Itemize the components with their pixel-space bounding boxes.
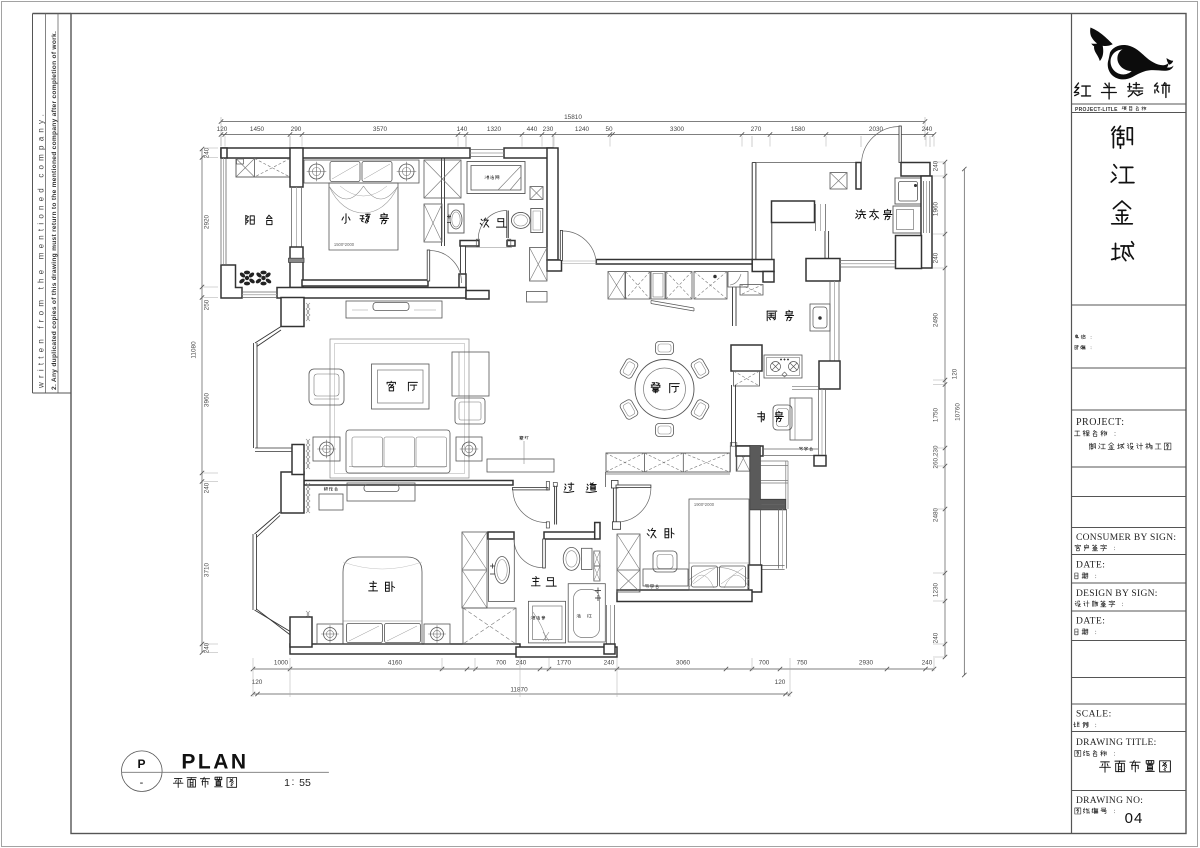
svg-text:1000: 1000: [274, 660, 289, 667]
svg-text:240: 240: [922, 126, 933, 133]
svg-text:DRAWING NO:: DRAWING NO:: [1076, 796, 1143, 806]
svg-text:15810: 15810: [564, 114, 582, 121]
svg-text:11870: 11870: [510, 687, 528, 694]
svg-text:440: 440: [527, 126, 538, 133]
svg-text:55: 55: [299, 777, 311, 789]
svg-text:750: 750: [797, 660, 808, 667]
svg-text:700: 700: [759, 660, 770, 667]
svg-text:CONSUMER BY SIGN:: CONSUMER BY SIGN:: [1076, 533, 1176, 543]
svg-text:DRAWING TITLE:: DRAWING TITLE:: [1076, 738, 1157, 748]
svg-text:240: 240: [933, 632, 940, 643]
svg-text:50: 50: [605, 126, 613, 133]
svg-text:240: 240: [516, 660, 527, 667]
svg-text:240: 240: [204, 482, 211, 493]
svg-text:1450: 1450: [250, 126, 265, 133]
svg-text:DATE:: DATE:: [1076, 617, 1105, 627]
svg-text:11080: 11080: [191, 341, 198, 359]
svg-text:DESIGN BY SIGN:: DESIGN BY SIGN:: [1076, 589, 1158, 599]
svg-text:3300: 3300: [670, 126, 685, 133]
svg-text:1770: 1770: [557, 660, 572, 667]
svg-text:250: 250: [204, 299, 211, 310]
svg-text:1320: 1320: [487, 126, 502, 133]
svg-text:120: 120: [775, 679, 786, 686]
svg-text:290: 290: [291, 126, 302, 133]
svg-text:PLAN: PLAN: [181, 751, 248, 774]
svg-text:04: 04: [1125, 810, 1144, 827]
svg-text:1960: 1960: [933, 201, 940, 216]
svg-text:2930: 2930: [859, 660, 874, 667]
svg-text:3570: 3570: [373, 126, 388, 133]
svg-text:240: 240: [922, 660, 933, 667]
svg-text:2030: 2030: [869, 126, 884, 133]
svg-text:700: 700: [496, 660, 507, 667]
svg-text:140: 140: [457, 126, 468, 133]
svg-text:SCALE:: SCALE:: [1076, 710, 1112, 720]
svg-text:240: 240: [604, 660, 615, 667]
svg-text:260,230: 260,230: [933, 445, 940, 469]
svg-text:230: 230: [543, 126, 554, 133]
svg-text:2490: 2490: [933, 312, 940, 327]
svg-text:4160: 4160: [388, 660, 403, 667]
svg-text:1500*2000: 1500*2000: [334, 242, 355, 247]
svg-text:3710: 3710: [204, 562, 211, 577]
svg-text:1: 1: [284, 777, 290, 789]
svg-text:3960: 3960: [204, 392, 211, 407]
svg-text:written from the mentioned com: written from the mentioned company.: [37, 110, 46, 389]
svg-text:240: 240: [933, 252, 940, 263]
svg-text:2920: 2920: [204, 214, 211, 229]
svg-text:-: -: [140, 777, 144, 789]
svg-text:2480: 2480: [933, 507, 940, 522]
svg-text:120: 120: [252, 679, 263, 686]
svg-text:120: 120: [217, 126, 228, 133]
svg-text:270: 270: [751, 126, 762, 133]
svg-text:1900*2000: 1900*2000: [694, 502, 715, 507]
svg-text:1230: 1230: [933, 582, 940, 597]
svg-text:PROJECT:: PROJECT:: [1076, 417, 1125, 428]
svg-text:3060: 3060: [676, 660, 691, 667]
svg-text:PROJECT-LITLE: PROJECT-LITLE: [1075, 107, 1118, 113]
svg-text:240: 240: [204, 147, 211, 158]
svg-text:DATE:: DATE:: [1076, 561, 1105, 571]
svg-text:1750: 1750: [933, 407, 940, 422]
svg-text:10760: 10760: [955, 403, 962, 421]
svg-text:1240: 1240: [575, 126, 590, 133]
svg-text:2. Any duplicated copies of th: 2. Any duplicated copies of this drawing…: [51, 31, 58, 390]
svg-text:1580: 1580: [791, 126, 806, 133]
svg-text::: :: [292, 776, 295, 788]
svg-text:120: 120: [952, 368, 959, 379]
svg-text:P: P: [137, 757, 145, 771]
